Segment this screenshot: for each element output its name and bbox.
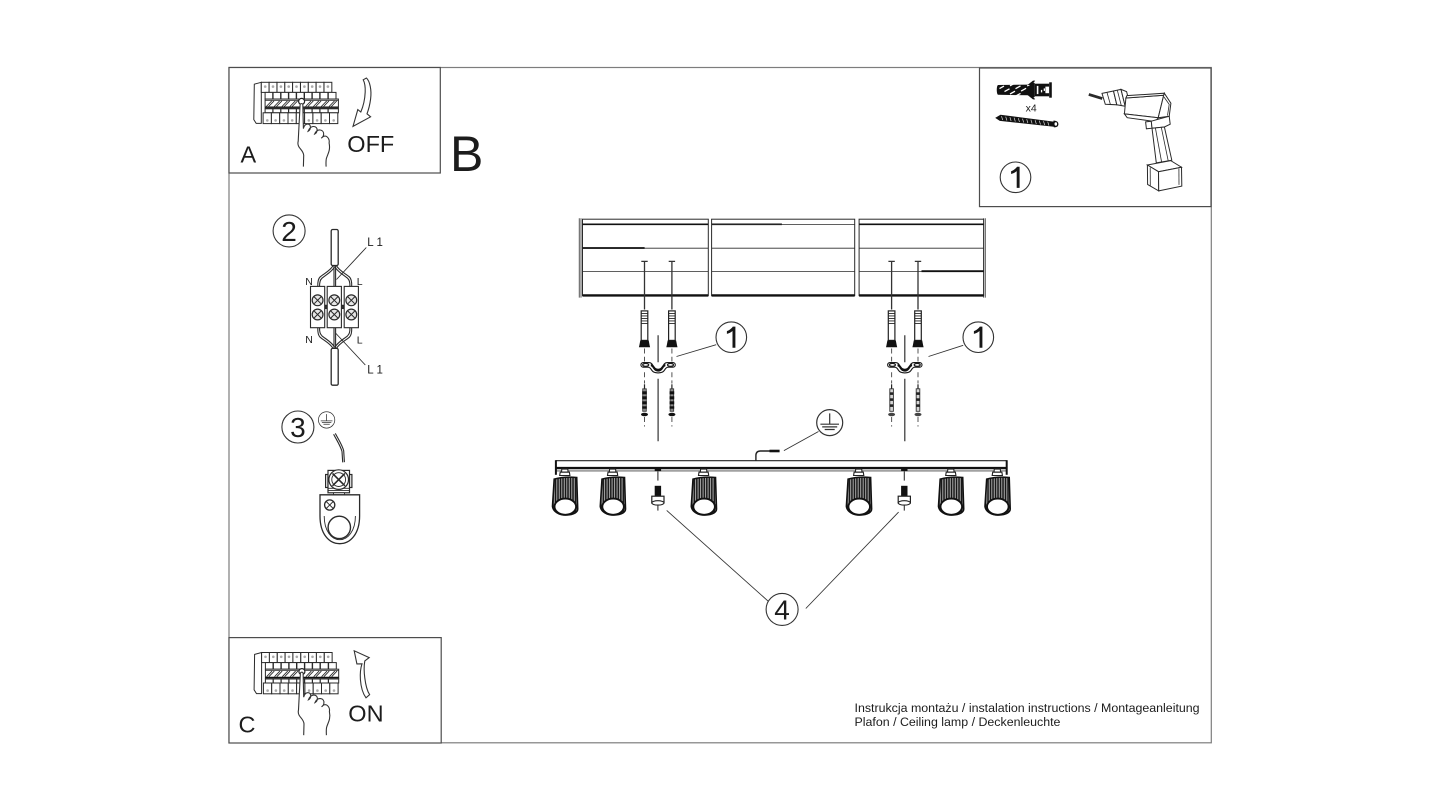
- svg-text:3: 3: [290, 412, 306, 443]
- svg-text:L: L: [357, 335, 363, 347]
- svg-text:x4: x4: [1026, 102, 1037, 114]
- svg-text:L: L: [357, 276, 363, 288]
- svg-text:Instrukcja montażu / instalati: Instrukcja montażu / instalation instruc…: [855, 701, 1200, 715]
- svg-text:C: C: [239, 711, 256, 737]
- svg-text:N: N: [305, 334, 313, 346]
- svg-text:ON: ON: [348, 701, 383, 727]
- svg-text:A: A: [241, 142, 257, 168]
- svg-text:L 1: L 1: [367, 237, 383, 249]
- svg-text:N: N: [305, 276, 313, 288]
- svg-text:L 1: L 1: [367, 364, 383, 376]
- svg-text:2: 2: [281, 216, 297, 247]
- svg-text:4: 4: [774, 594, 790, 625]
- svg-text:B: B: [450, 126, 483, 182]
- svg-text:OFF: OFF: [347, 131, 394, 157]
- svg-text:Plafon / Ceiling lamp / Decken: Plafon / Ceiling lamp / Deckenleuchte: [855, 715, 1061, 729]
